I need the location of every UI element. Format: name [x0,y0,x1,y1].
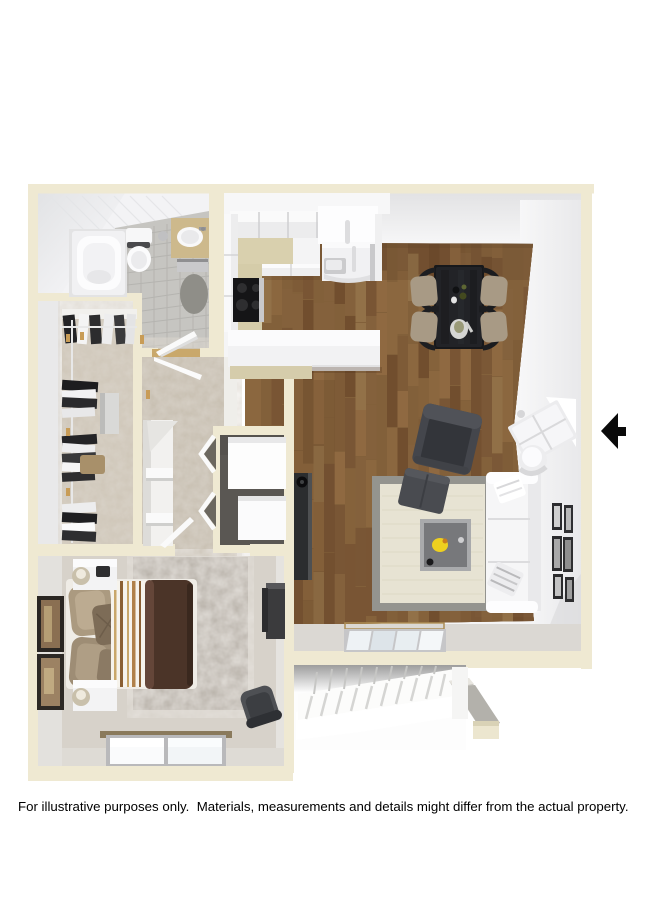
svg-text:For illustrative purposes only: For illustrative purposes only. Material… [18,799,629,814]
